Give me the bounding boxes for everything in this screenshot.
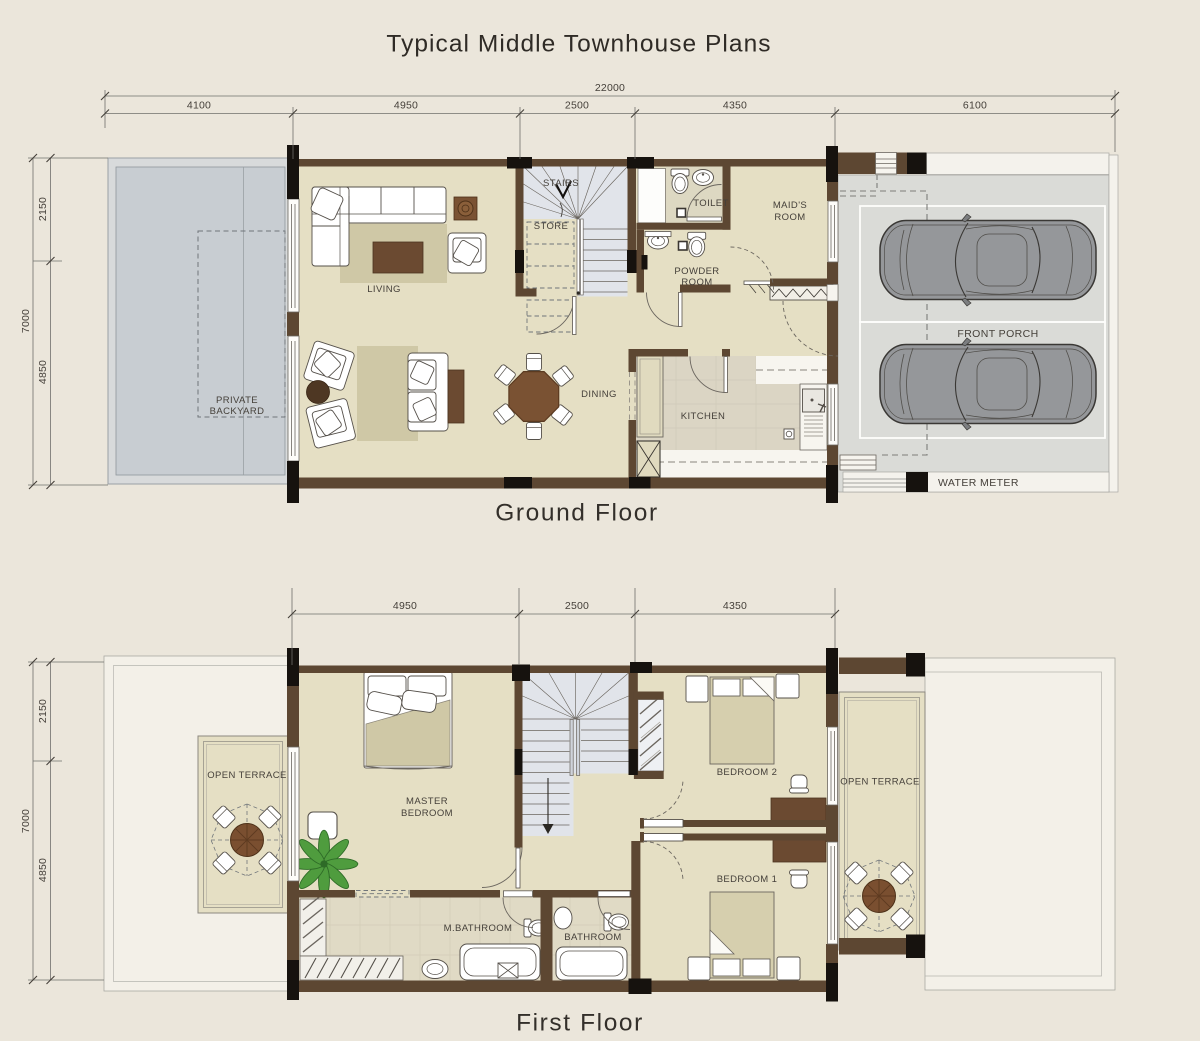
svg-text:4350: 4350 xyxy=(723,100,747,112)
svg-text:4850: 4850 xyxy=(37,858,49,882)
svg-text:Typical Middle Townhouse Plans: Typical Middle Townhouse Plans xyxy=(386,31,771,58)
svg-text:STORE: STORE xyxy=(534,221,569,232)
svg-text:4850: 4850 xyxy=(37,360,49,384)
svg-text:7000: 7000 xyxy=(20,809,32,833)
svg-text:7000: 7000 xyxy=(20,309,32,333)
svg-text:WATER METER: WATER METER xyxy=(938,477,1019,489)
svg-text:LIVING: LIVING xyxy=(367,284,401,295)
svg-text:BATHROOM: BATHROOM xyxy=(564,932,621,943)
svg-text:BACKYARD: BACKYARD xyxy=(210,406,265,417)
svg-text:MASTER: MASTER xyxy=(406,796,448,807)
svg-text:4950: 4950 xyxy=(394,100,418,112)
svg-text:FRONT PORCH: FRONT PORCH xyxy=(957,328,1038,340)
svg-text:KITCHEN: KITCHEN xyxy=(681,411,726,422)
svg-text:22000: 22000 xyxy=(595,82,625,94)
svg-text:BEDROOM 1: BEDROOM 1 xyxy=(717,874,778,885)
svg-text:2500: 2500 xyxy=(565,100,589,112)
svg-text:STAIRS: STAIRS xyxy=(543,178,579,189)
svg-text:OPEN TERRACE: OPEN TERRACE xyxy=(207,770,287,781)
svg-text:4350: 4350 xyxy=(723,600,747,612)
svg-text:2150: 2150 xyxy=(37,699,49,723)
svg-text:BEDROOM: BEDROOM xyxy=(401,808,453,819)
svg-text:MAID'S: MAID'S xyxy=(773,200,807,211)
svg-text:ROOM: ROOM xyxy=(774,212,805,223)
svg-text:4950: 4950 xyxy=(393,600,417,612)
svg-text:Ground Floor: Ground Floor xyxy=(495,500,659,527)
svg-text:6100: 6100 xyxy=(963,100,987,112)
svg-text:PRIVATE: PRIVATE xyxy=(216,395,258,406)
svg-text:BEDROOM 2: BEDROOM 2 xyxy=(717,767,778,778)
svg-text:4100: 4100 xyxy=(187,100,211,112)
svg-text:2150: 2150 xyxy=(37,197,49,221)
svg-text:OPEN TERRACE: OPEN TERRACE xyxy=(840,777,920,788)
svg-text:2500: 2500 xyxy=(565,600,589,612)
svg-text:POWDER: POWDER xyxy=(674,266,719,277)
svg-text:M.BATHROOM: M.BATHROOM xyxy=(444,923,513,934)
svg-text:ROOM: ROOM xyxy=(681,277,712,288)
svg-text:TOILET: TOILET xyxy=(693,198,728,209)
svg-text:First Floor: First Floor xyxy=(516,1010,644,1037)
svg-text:DINING: DINING xyxy=(581,389,617,400)
